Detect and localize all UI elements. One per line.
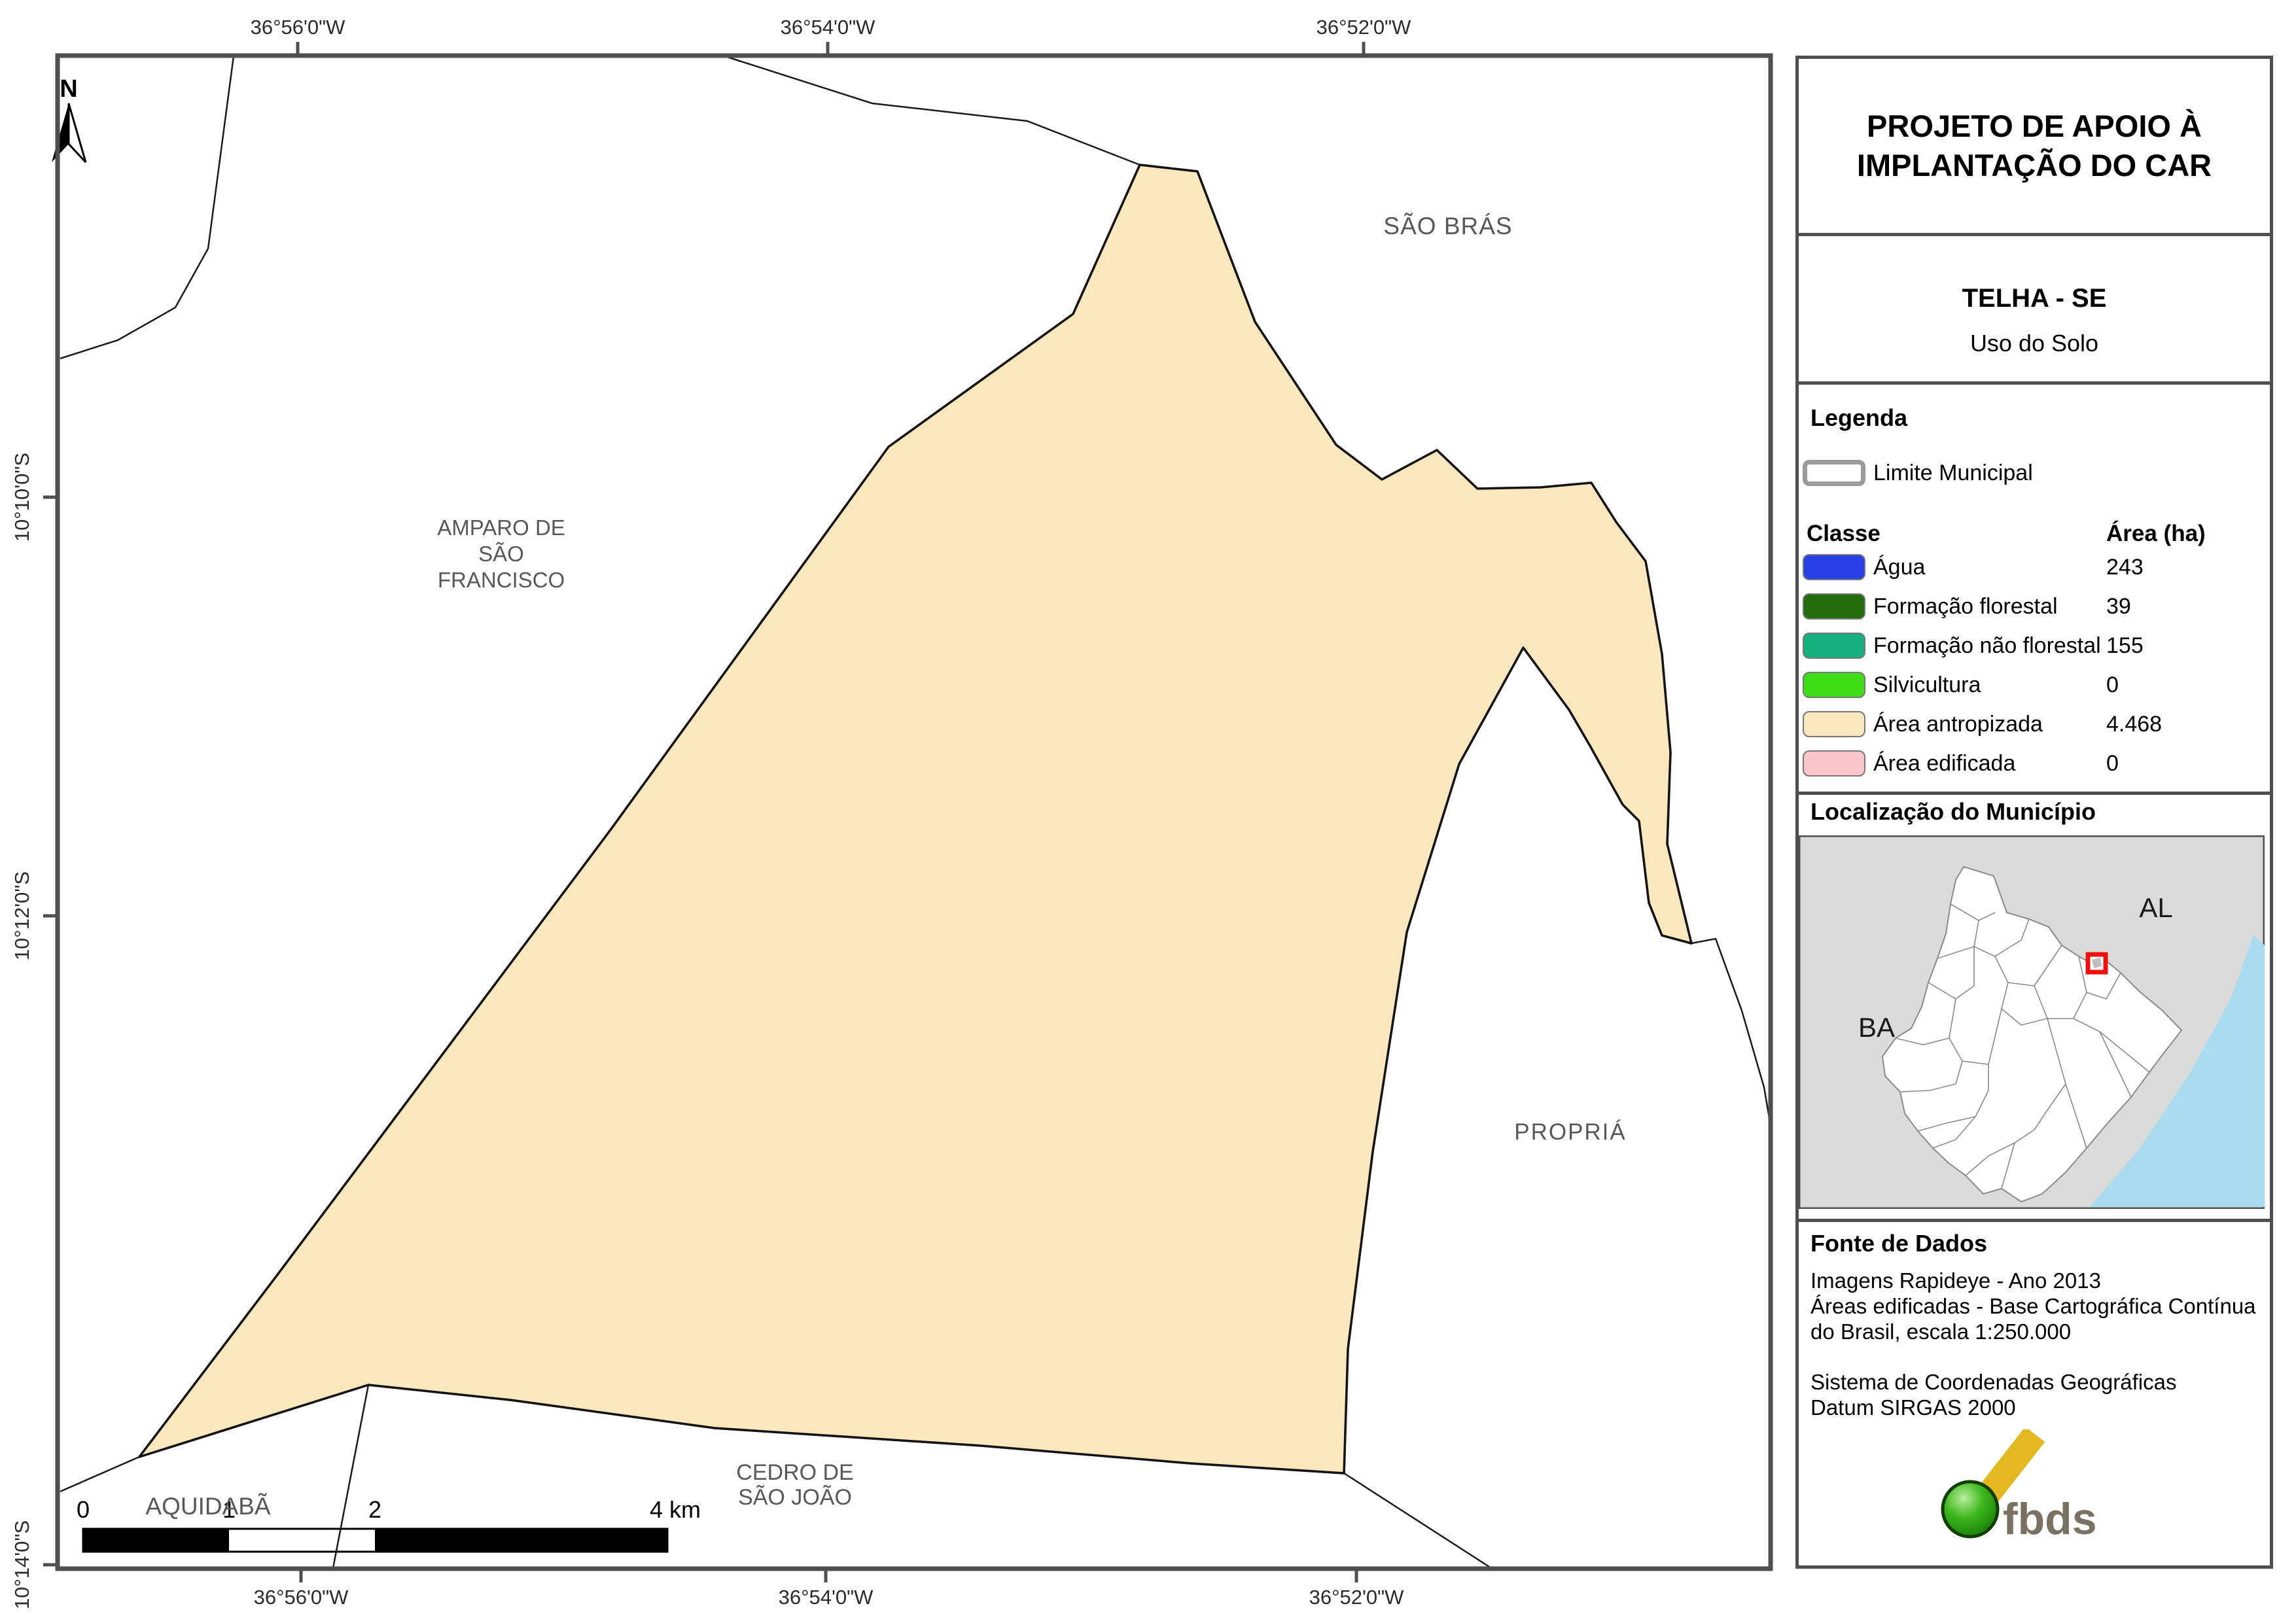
divider <box>1799 381 2270 385</box>
info-panel: PROJETO DE APOIO À IMPLANTAÇÃO DO CAR TE… <box>1795 56 2273 1569</box>
class-value: 243 <box>2106 555 2144 580</box>
class-label: Formação florestal <box>1873 594 2058 620</box>
class-swatch <box>1803 633 1865 659</box>
label-propria: PROPRIÁ <box>1514 1119 1627 1145</box>
lon-label-top: 36°54'0"W <box>781 16 876 39</box>
lon-label-bottom: 36°56'0"W <box>254 1586 349 1609</box>
fbds-logo: fbds <box>1927 1429 2143 1560</box>
class-swatch <box>1803 750 1865 777</box>
inset-label-al: AL <box>2139 892 2172 923</box>
scale-label-4km: 4 km <box>650 1496 701 1523</box>
class-value: 0 <box>2106 672 2119 698</box>
source-line: Datum SIRGAS 2000 <box>1810 1395 2016 1420</box>
class-value: 39 <box>2106 594 2131 620</box>
class-label: Silvicultura <box>1873 672 1981 698</box>
divider <box>1799 1219 2270 1222</box>
source-line: Áreas edificadas - Base Cartográfica Con… <box>1810 1293 2256 1319</box>
legend-col-class: Classe <box>1807 521 1881 547</box>
map-type-title: Uso do Solo <box>1799 330 2270 357</box>
source-line: do Brasil, escala 1:250.000 <box>1810 1319 2071 1344</box>
class-value: 4.468 <box>2106 712 2162 737</box>
legend-heading: Legenda <box>1810 404 1907 432</box>
class-value: 0 <box>2106 751 2119 777</box>
lat-label-left: 10°14'0"S <box>10 1520 33 1609</box>
class-label: Água <box>1873 555 1925 580</box>
limite-swatch <box>1803 460 1865 486</box>
lon-label-bottom: 36°54'0"W <box>779 1586 874 1609</box>
class-value: 155 <box>2106 633 2144 659</box>
scale-label-2: 2 <box>368 1496 381 1523</box>
lon-label-bottom: 36°52'0"W <box>1309 1586 1405 1609</box>
label-cedro-1: CEDRO DE <box>736 1460 853 1485</box>
label-amparo-2: SÃO <box>478 542 524 566</box>
scale-bar-segment <box>83 1529 229 1552</box>
class-label: Formação não florestal <box>1873 633 2101 659</box>
label-sao-bras: SÃO BRÁS <box>1383 213 1512 239</box>
label-amparo-3: FRANCISCO <box>438 568 565 592</box>
class-swatch <box>1803 672 1865 698</box>
lat-label-left: 10°12'0"S <box>10 871 33 960</box>
inset-map: AL BA <box>1799 835 2265 1209</box>
logo-sphere-icon <box>1943 1482 1998 1537</box>
lon-label-top: 36°56'0"W <box>251 16 346 39</box>
class-swatch <box>1803 593 1865 620</box>
source-line: Imagens Rapideye - Ano 2013 <box>1810 1268 2101 1293</box>
label-amparo-1: AMPARO DE <box>437 515 565 540</box>
class-swatch <box>1803 554 1865 580</box>
class-label: Área antropizada <box>1873 712 2043 737</box>
project-title-line2: IMPLANTAÇÃO DO CAR <box>1857 148 2212 183</box>
label-cedro-2: SÃO JOÃO <box>738 1485 852 1510</box>
source-heading: Fonte de Dados <box>1810 1230 1987 1257</box>
divider <box>1799 792 2270 795</box>
lon-label-top: 36°52'0"W <box>1316 16 1412 39</box>
logo-text: fbds <box>2003 1494 2097 1544</box>
inset-label-ba: BA <box>1858 1012 1895 1043</box>
legend-col-area: Área (ha) <box>2106 521 2206 547</box>
project-title: PROJETO DE APOIO À IMPLANTAÇÃO DO CAR <box>1799 59 2270 233</box>
lat-label-left: 10°10'0"S <box>10 453 33 542</box>
project-title-line1: PROJETO DE APOIO À <box>1867 109 2202 143</box>
source-line: Sistema de Coordenadas Geográficas <box>1810 1369 2177 1395</box>
divider <box>1799 233 2270 236</box>
north-label: N <box>60 75 77 103</box>
page: 0 1 2 4 km SÃO BRÁS AMPARO DE SÃO FRANCI… <box>0 0 2296 1623</box>
limite-label: Limite Municipal <box>1873 461 2033 486</box>
municipality-title: TELHA - SE <box>1799 284 2270 313</box>
class-swatch <box>1803 711 1865 737</box>
class-label: Área edificada <box>1873 751 2015 777</box>
scale-label-0: 0 <box>77 1496 90 1523</box>
inset-heading: Localização do Município <box>1810 798 2096 826</box>
scale-bar-segment <box>375 1529 667 1552</box>
label-aquidaba: AQUIDABÃ <box>145 1493 271 1520</box>
